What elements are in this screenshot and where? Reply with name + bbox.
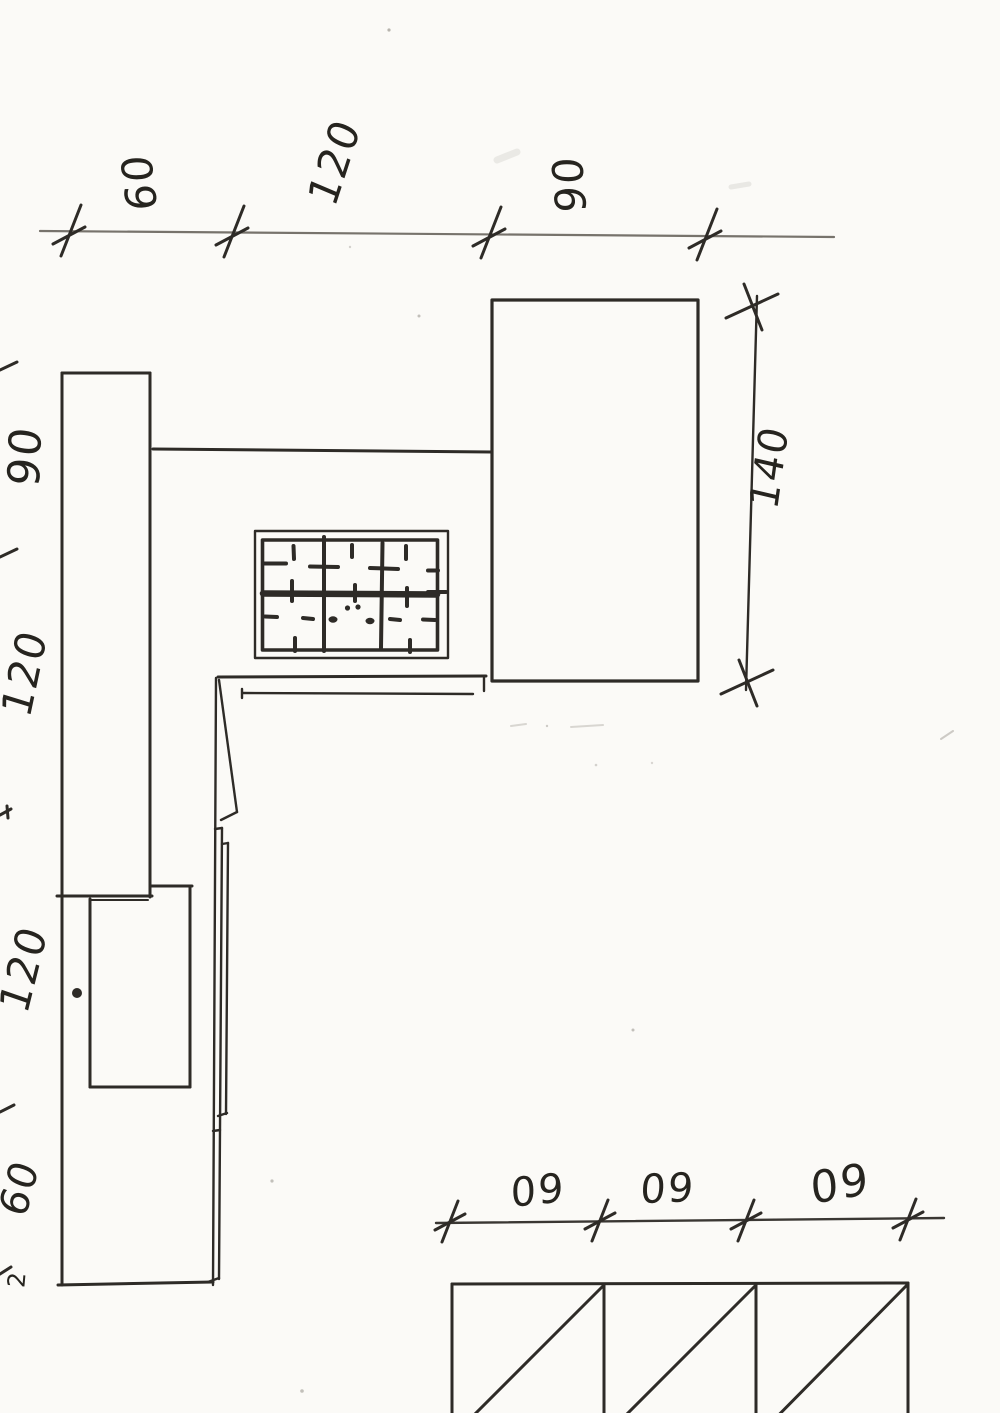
corner-flap-and-panels <box>208 678 237 1285</box>
base-cabinet-left <box>58 886 213 1285</box>
dim-label-left-1: 90 <box>3 423 49 488</box>
upper-cabinet-right <box>492 300 698 681</box>
counter-edge-lines <box>218 676 486 698</box>
door-handle-dot <box>72 988 82 998</box>
hob-burner-marks <box>263 545 446 652</box>
left-dimension-ticks <box>0 362 17 1274</box>
dim-label-top-1: 60 <box>115 153 164 211</box>
dim-label-bottom-3: 60 <box>807 1154 870 1208</box>
scanned-sketch-page: 60 120 90 140 90 120 120 60 2 60 60 60 <box>0 0 1000 1413</box>
dim-label-right-1: 140 <box>745 422 796 513</box>
dim-edge-mark: 2 <box>4 1269 29 1288</box>
tall-cabinet-outline <box>57 373 152 1285</box>
bottom-dimension-line <box>436 1218 944 1223</box>
dim-label-bottom-1: 60 <box>508 1165 563 1211</box>
bottom-base-cabinets <box>452 1283 908 1413</box>
connector-wall-line <box>153 449 492 452</box>
dim-label-top-3: 90 <box>546 155 593 212</box>
dim-label-bottom-2: 60 <box>638 1165 695 1207</box>
